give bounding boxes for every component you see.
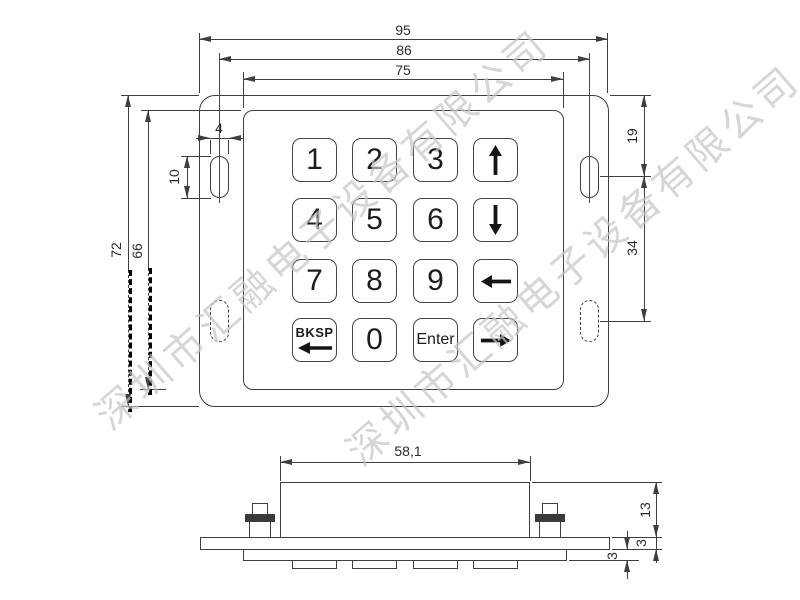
dim-label: 95 (383, 23, 423, 37)
key-label: 2 (366, 145, 383, 175)
ext-line (210, 140, 211, 154)
ext-line (141, 110, 241, 111)
key-label: 6 (427, 205, 444, 235)
ext-line (228, 140, 229, 154)
backspace-arrow-icon (298, 342, 332, 354)
keypad-key-right (473, 318, 518, 362)
dim-label: 19 (625, 120, 639, 152)
arrowhead (641, 95, 647, 107)
key-label: 8 (366, 266, 383, 296)
stud-body (539, 521, 561, 538)
key-label: 4 (306, 205, 323, 235)
dim-label: 3 (605, 541, 619, 571)
dim-line (644, 176, 645, 321)
dim-label: 3 (634, 528, 648, 558)
arrowhead (641, 176, 647, 188)
arrow-up-icon (489, 145, 502, 175)
arrowhead (198, 135, 210, 141)
dim-line (199, 39, 608, 40)
key-label: BKSP (295, 326, 333, 339)
keypad-key-8: 8 (352, 259, 397, 303)
ext-line (121, 406, 199, 407)
arrowhead (199, 36, 211, 42)
dim-label: 75 (383, 63, 423, 77)
keypad-key-bksp: BKSP (292, 318, 337, 362)
dim-label: 66 (130, 235, 144, 267)
ext-line (199, 33, 200, 93)
arrowhead (125, 394, 131, 406)
arrowhead (578, 56, 590, 62)
stud-body (249, 521, 271, 538)
dim-line (148, 268, 152, 395)
ext-line (563, 72, 564, 108)
ext-line (140, 389, 166, 390)
ext-line (569, 560, 639, 561)
arrowhead (653, 482, 659, 494)
dim-label: 58,1 (380, 444, 436, 458)
arrowhead (184, 186, 190, 198)
arrowhead (641, 164, 647, 176)
keypad-key-enter: Enter (413, 318, 458, 362)
key-label: 9 (427, 266, 444, 296)
keypad-key-5: 5 (352, 198, 397, 242)
arrowhead (145, 110, 151, 122)
arrowhead (280, 459, 292, 465)
key-label: 3 (427, 145, 444, 175)
dim-label: 4 (207, 121, 231, 135)
key-boss (292, 560, 337, 569)
key-label: 1 (306, 145, 323, 175)
keypad-key-6: 6 (413, 198, 458, 242)
arrowhead (653, 525, 659, 537)
arrow-left-icon (481, 275, 511, 288)
key-boss (352, 560, 397, 569)
keypad-key-4: 4 (292, 198, 337, 242)
arrowhead (229, 135, 241, 141)
arrowhead (145, 377, 151, 389)
arrowhead (641, 309, 647, 321)
ext-line (121, 95, 199, 96)
ext-line (532, 482, 662, 483)
arrowhead (518, 459, 530, 465)
dim-line (148, 110, 149, 268)
dim-line (280, 462, 530, 463)
arrowhead (624, 537, 630, 549)
arrow-down-icon (489, 205, 502, 235)
drawing-canvas: 1 2 3 4 5 6 7 8 9 BKSP 0 Enter 95 86 (0, 0, 800, 600)
keypad-key-7: 7 (292, 259, 337, 303)
keypad-key-left (473, 259, 518, 303)
key-label: Enter (416, 332, 454, 348)
housing-outline (280, 482, 530, 538)
dim-label: 13 (638, 494, 652, 526)
arrowhead (551, 76, 563, 82)
ext-line (607, 33, 608, 93)
arrow-right-icon (481, 334, 511, 347)
keypad-key-0: 0 (352, 318, 397, 362)
dim-line (128, 270, 132, 412)
keypad-key-1: 1 (292, 138, 337, 182)
ext-line (600, 321, 651, 322)
arrowhead (653, 549, 659, 561)
arrowhead (596, 36, 608, 42)
arrowhead (624, 560, 630, 572)
ext-line (530, 456, 531, 481)
dim-line (243, 79, 563, 80)
keypad-key-9: 9 (413, 259, 458, 303)
dim-label: 10 (167, 162, 181, 192)
keypad-key-down (473, 198, 518, 242)
mounting-slot-bottom-left-hidden (210, 300, 229, 342)
slot-centerline (589, 53, 590, 203)
arrowhead (125, 95, 131, 107)
dim-label: 34 (625, 232, 639, 264)
key-label: 0 (366, 325, 383, 355)
key-boss (413, 560, 458, 569)
dim-line (219, 59, 590, 60)
dim-label: 72 (109, 234, 123, 266)
key-boss (473, 560, 518, 569)
ext-line (181, 198, 211, 199)
keypad-key-2: 2 (352, 138, 397, 182)
arrowhead (184, 156, 190, 168)
key-label: 7 (306, 266, 323, 296)
dim-label: 86 (384, 43, 424, 57)
mounting-slot-bottom-right-hidden (580, 300, 599, 342)
arrowhead (219, 56, 231, 62)
keypad-key-up (473, 138, 518, 182)
arrowhead (243, 76, 255, 82)
key-label: 5 (366, 205, 383, 235)
keypad-key-3: 3 (413, 138, 458, 182)
